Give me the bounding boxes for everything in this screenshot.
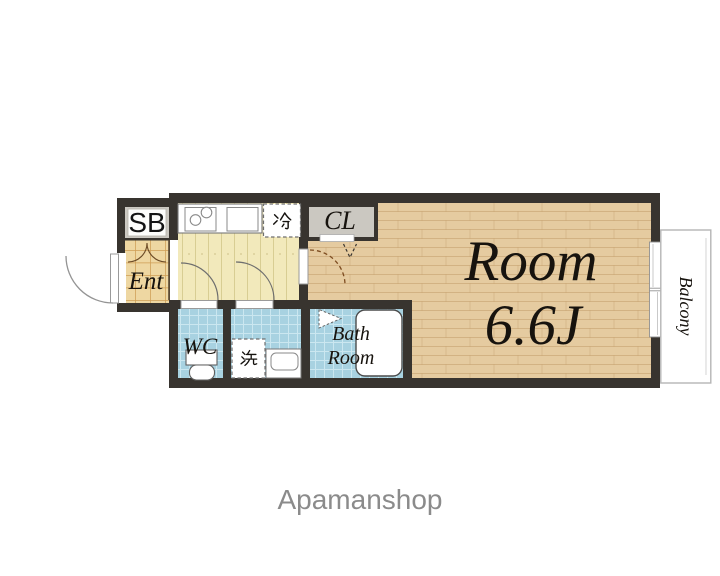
watermark: Apamanshop — [277, 484, 442, 515]
entrance-bottom-wall — [117, 303, 176, 312]
kitchen-counter — [178, 204, 262, 233]
bath-room-label-line2: Room — [327, 347, 375, 369]
stove-burner-icon — [201, 207, 212, 218]
floor-plan-page: 冷 洗 — [0, 0, 720, 576]
bath-left-wall — [301, 300, 310, 388]
bath-top-wall — [301, 300, 412, 309]
wc-washroom-wall — [223, 309, 231, 378]
lower-wall-seg2 — [217, 300, 236, 309]
shoe-box-divider — [125, 238, 169, 241]
wc-door-leaf — [181, 301, 217, 309]
closet-label: CL — [324, 206, 356, 235]
bottom-wall — [169, 378, 660, 388]
window-frame — [650, 242, 662, 337]
balcony: Balcony — [661, 230, 711, 383]
room-door-leaf — [299, 249, 308, 284]
closet-opening — [320, 235, 354, 242]
toilet-bowl — [190, 365, 215, 380]
stove-burner-icon — [190, 215, 201, 226]
washroom-door-leaf — [236, 301, 273, 309]
lower-wall-seg1 — [169, 300, 181, 309]
entrance-left-wall-upper — [117, 198, 125, 253]
left-wall-upper — [169, 193, 178, 240]
vanity-bowl — [271, 353, 298, 370]
balcony-window — [650, 242, 662, 337]
wc-label: WC — [183, 334, 218, 359]
refrigerator-box — [264, 204, 301, 237]
shoe-box-label: SB — [128, 207, 165, 238]
kitchen-sink — [227, 208, 258, 232]
balcony-label: Balcony — [676, 277, 696, 336]
top-wall — [169, 193, 660, 203]
entrance-door-leaf — [111, 254, 119, 303]
entrance-threshold-line — [168, 240, 170, 300]
bath-room-label-line1: Bath — [332, 323, 370, 345]
entrance-top-wall — [117, 198, 178, 207]
washing-machine: 洗 — [232, 339, 265, 378]
bath-right-wall — [403, 300, 412, 388]
refrigerator: 冷 — [264, 204, 301, 237]
vanity — [266, 349, 301, 378]
main-room-label: Room — [464, 230, 598, 293]
main-room-size-label: 6.6J — [485, 294, 584, 357]
entrance-label: Ent — [128, 268, 165, 295]
left-wall-lower — [169, 300, 178, 388]
floor-plan-drawing: 冷 洗 — [0, 0, 720, 576]
